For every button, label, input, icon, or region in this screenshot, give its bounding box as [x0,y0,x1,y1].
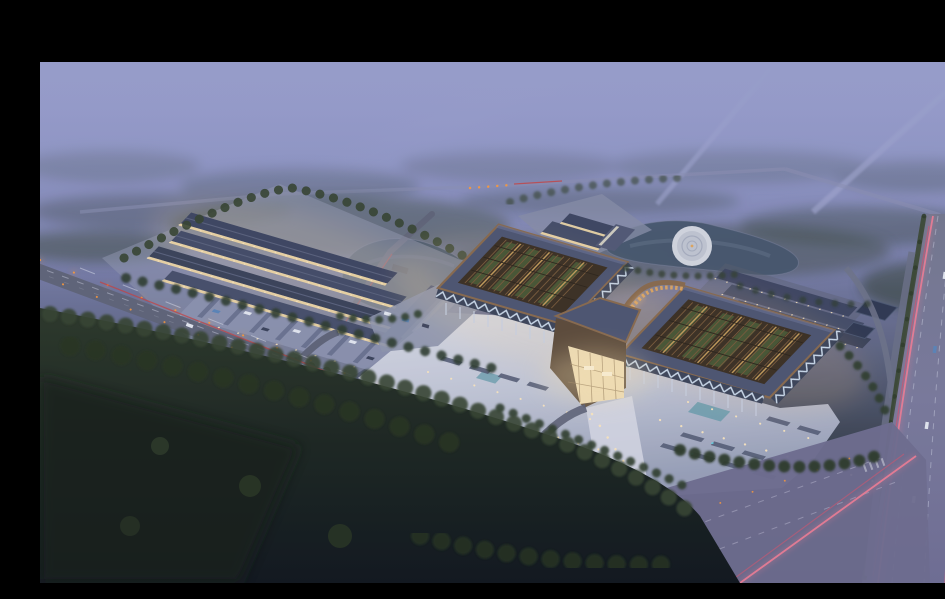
letterbox-top-bar [40,16,945,62]
color-cast [40,62,945,583]
aerial-rendering [40,16,945,583]
